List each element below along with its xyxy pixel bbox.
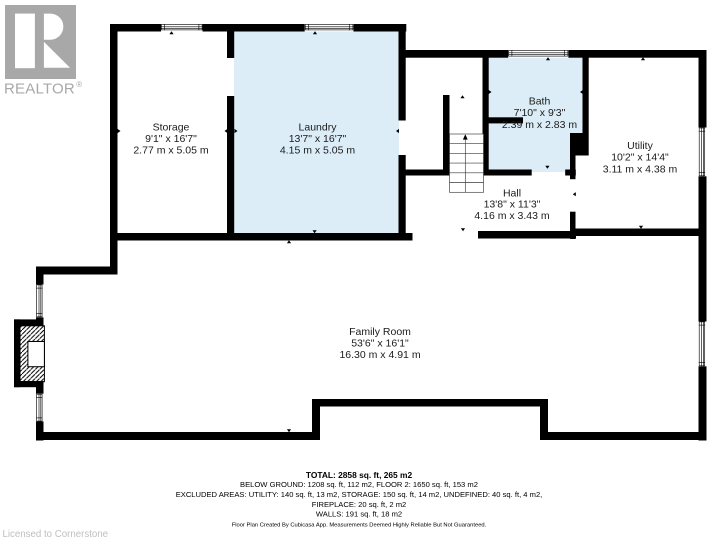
svg-text:Bath: Bath <box>529 96 551 108</box>
svg-text:Family Room: Family Room <box>349 326 411 338</box>
svg-text:9'1" x 16'7": 9'1" x 16'7" <box>145 133 197 145</box>
svg-text:Laundry: Laundry <box>299 122 338 134</box>
svg-text:Storage: Storage <box>153 122 190 134</box>
svg-text:BELOW GROUND: 1208 sq. ft, 112: BELOW GROUND: 1208 sq. ft, 112 m2, FLOOR… <box>240 480 478 489</box>
svg-text:FIREPLACE: 20 sq. ft, 2 m2: FIREPLACE: 20 sq. ft, 2 m2 <box>312 500 407 509</box>
svg-text:®: ® <box>76 80 82 89</box>
svg-text:EXCLUDED AREAS: UTILITY: 140 s: EXCLUDED AREAS: UTILITY: 140 sq. ft, 13 … <box>176 490 543 499</box>
svg-text:3.11 m x 4.38 m: 3.11 m x 4.38 m <box>603 163 678 175</box>
svg-text:4.16 m x 3.43 m: 4.16 m x 3.43 m <box>474 210 550 222</box>
svg-text:2.77 m x 5.05 m: 2.77 m x 5.05 m <box>133 145 209 157</box>
svg-text:Utility: Utility <box>627 140 653 152</box>
svg-text:Hall: Hall <box>503 187 521 199</box>
svg-text:Floor Plan Created By Cubicasa: Floor Plan Created By Cubicasa App. Meas… <box>232 523 487 529</box>
svg-text:16.30 m x 4.91 m: 16.30 m x 4.91 m <box>339 349 420 361</box>
svg-text:7'10" x 9'3": 7'10" x 9'3" <box>514 107 566 119</box>
svg-text:10'2" x 14'4": 10'2" x 14'4" <box>611 152 669 164</box>
svg-text:13'8" x 11'3": 13'8" x 11'3" <box>484 199 541 211</box>
svg-text:WALLS: 191 sq. ft, 18 m2: WALLS: 191 sq. ft, 18 m2 <box>316 509 402 518</box>
svg-text:REALTOR: REALTOR <box>4 81 75 98</box>
svg-text:Licensed to Cornerstone: Licensed to Cornerstone <box>3 529 109 540</box>
svg-text:53'6" x 16'1": 53'6" x 16'1" <box>351 338 409 350</box>
svg-text:TOTAL: 2858 sq. ft, 265 m2: TOTAL: 2858 sq. ft, 265 m2 <box>306 470 413 480</box>
svg-text:13'7" x 16'7": 13'7" x 16'7" <box>289 133 347 145</box>
svg-text:2.39 m x 2.83 m: 2.39 m x 2.83 m <box>502 119 578 131</box>
svg-text:4.15 m x 5.05 m: 4.15 m x 5.05 m <box>280 145 356 157</box>
